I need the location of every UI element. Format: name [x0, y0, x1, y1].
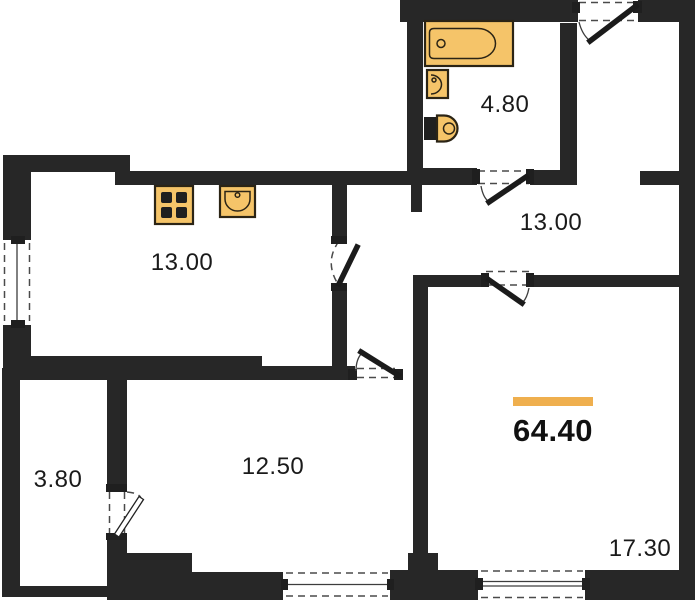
kitchen-sink-icon — [220, 186, 255, 217]
room-area-label-kitchen: 13.00 — [151, 249, 214, 277]
entrance-door — [572, 1, 642, 41]
room-area-label-hallway: 13.00 — [520, 209, 583, 237]
bathroom-door — [472, 169, 534, 202]
room-area-label-living-room: 17.30 — [609, 535, 672, 563]
room-area-label-bedroom: 12.50 — [242, 453, 305, 481]
kitchen-window — [5, 236, 30, 328]
bedroom-window — [281, 573, 394, 596]
bathtub-icon — [425, 21, 513, 66]
floor-plan: 13.00 4.80 13.00 12.50 3.80 17.30 64.40 — [0, 0, 695, 600]
living-room-window — [475, 571, 590, 598]
bathroom-sink-icon — [427, 70, 448, 98]
living-room-door — [481, 272, 534, 304]
toilet-icon — [424, 116, 458, 142]
plan-overlay — [0, 0, 695, 600]
storage-door — [106, 484, 144, 540]
bedroom-door — [348, 352, 403, 380]
total-area-label: 64.40 — [513, 413, 593, 449]
kitchen-door — [331, 236, 357, 291]
stove-icon — [155, 186, 193, 224]
room-area-label-storage: 3.80 — [34, 466, 83, 494]
total-area-accent-bar — [513, 397, 593, 406]
room-area-label-bathroom: 4.80 — [481, 91, 530, 119]
